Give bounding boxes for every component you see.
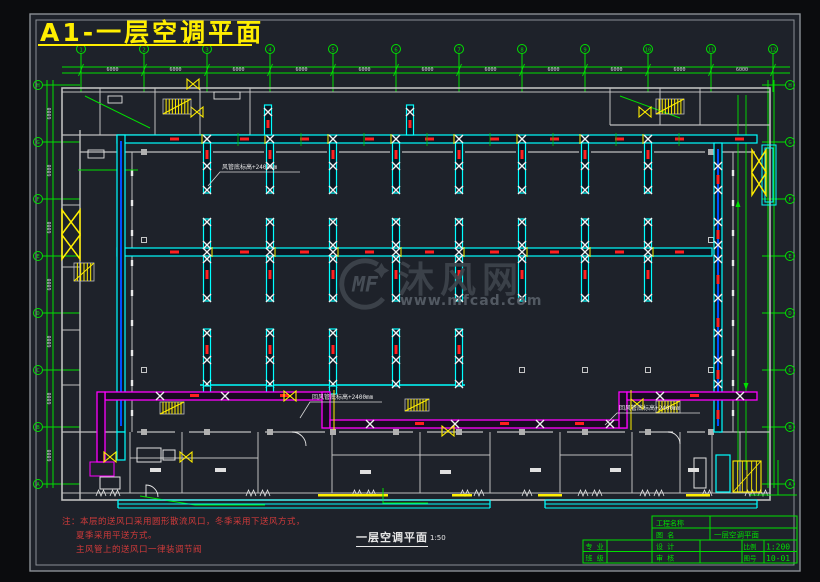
axis-number: 7 <box>457 47 460 53</box>
door-mark <box>732 290 734 296</box>
axis-letter: F <box>788 197 791 203</box>
dim-text: 6000 <box>169 67 181 73</box>
supply-duct <box>267 219 274 248</box>
column <box>330 429 336 435</box>
window-sill <box>452 494 472 497</box>
drawing-scale-label: 1:50 <box>430 534 446 542</box>
axis-number: 10 <box>645 47 652 53</box>
door-mark <box>732 350 734 356</box>
fixture <box>360 470 371 474</box>
airflow-flag <box>190 394 199 397</box>
fixture <box>530 468 541 472</box>
axis-number: 6 <box>394 47 397 53</box>
watermark: MF 沐风网 www.mfcad.com <box>336 253 526 323</box>
fixture <box>610 468 621 472</box>
airflow-flag <box>575 422 584 425</box>
airflow-flag <box>332 150 335 159</box>
airflow-flag <box>170 138 179 141</box>
airflow-flag <box>269 270 272 279</box>
fixture <box>440 470 451 474</box>
airflow-flag <box>415 422 424 425</box>
column <box>708 429 714 435</box>
fixture <box>215 468 226 472</box>
airflow-flag <box>365 138 374 141</box>
airflow-flag <box>717 370 720 379</box>
supply-duct <box>393 219 400 248</box>
airflow-flag <box>521 150 524 159</box>
door-mark <box>131 200 133 206</box>
axis-number: 9 <box>583 47 586 53</box>
door-mark <box>732 380 734 386</box>
fixture <box>150 468 161 472</box>
door-mark <box>131 410 133 416</box>
axis-letter: C <box>788 368 791 374</box>
airflow-flag <box>717 230 720 239</box>
dim-text: 6000 <box>421 67 433 73</box>
door-mark <box>732 410 734 416</box>
tb-project-label: 工程名称 <box>656 519 684 528</box>
mfcad-logo-icon: MF <box>336 255 394 313</box>
airflow-flag <box>206 150 209 159</box>
tb-check-label: 审 核 <box>656 554 674 563</box>
column <box>141 149 147 155</box>
airflow-flag <box>269 345 272 354</box>
svg-text:MF: MF <box>351 273 379 298</box>
axis-letter: E <box>36 254 39 260</box>
column <box>393 429 399 435</box>
airflow-flag <box>267 120 270 128</box>
supply-duct <box>456 219 463 248</box>
axis-number: 8 <box>520 47 523 53</box>
airflow-flag <box>425 138 434 141</box>
dim-text: 6000 <box>232 67 244 73</box>
column <box>582 429 588 435</box>
tb-drawing-label: 图 名 <box>656 531 674 540</box>
dim-text: 6000 <box>358 67 370 73</box>
axis-letter: C <box>36 368 39 374</box>
column <box>708 149 714 155</box>
supply-duct <box>204 219 211 248</box>
tb-scale-value: 1:200 <box>766 543 790 552</box>
airflow-flag <box>647 270 650 279</box>
supply-duct <box>117 432 125 460</box>
airflow-flag <box>409 120 412 128</box>
airflow-flag <box>690 394 699 397</box>
supply-duct <box>519 219 526 248</box>
dim-text: 6000 <box>547 67 559 73</box>
axis-letter: D <box>36 311 39 317</box>
dim-text: 6000 <box>47 392 53 404</box>
tb-drawing-value: 一层空调平面 <box>714 530 759 540</box>
tb-design-label: 设 计 <box>656 542 674 551</box>
duct-annotation: 回风管底标高+2400mm <box>312 393 374 401</box>
door-mark <box>131 290 133 296</box>
window-sill <box>686 494 710 497</box>
airflow-flag <box>584 150 587 159</box>
tb-number-label: 图号 <box>744 555 758 563</box>
axis-number: 12 <box>770 47 777 53</box>
tb-major-label: 专 业 <box>586 542 604 551</box>
airflow-flag <box>300 251 309 254</box>
dim-text: 6000 <box>610 67 622 73</box>
supply-duct <box>117 135 757 143</box>
dim-text: 6000 <box>673 67 685 73</box>
tb-class-label: 班 级 <box>586 554 604 563</box>
airflow-flag <box>395 150 398 159</box>
door-mark <box>732 320 734 326</box>
airflow-flag <box>490 138 499 141</box>
note-line-1: 注：本层的送风口采用圆形散流风口，冬季采用下送风方式， <box>62 515 305 527</box>
column <box>519 429 525 435</box>
note-line-2: 夏季采用平送方式。 <box>76 529 157 541</box>
airflow-flag <box>550 138 559 141</box>
axis-letter: F <box>36 197 39 203</box>
duct-annotation: 回风管底标高+2400mm <box>619 404 681 412</box>
airflow-flag <box>647 150 650 159</box>
axis-letter: E <box>788 254 791 260</box>
cad-canvas: 1234567891011126000600060006000600060006… <box>0 0 820 582</box>
dim-text: 6000 <box>47 278 53 290</box>
window-sill <box>538 494 562 497</box>
door-mark <box>131 170 133 176</box>
airflow-flag <box>717 275 720 284</box>
title-underline <box>38 44 252 46</box>
airflow-flag <box>240 138 249 141</box>
door-mark <box>131 320 133 326</box>
axis-letter: H <box>788 83 791 89</box>
door-mark <box>131 230 133 236</box>
dim-text: 6000 <box>47 449 53 461</box>
airflow-flag <box>550 251 559 254</box>
column <box>141 429 147 435</box>
supply-duct <box>582 219 589 248</box>
airflow-flag <box>332 345 335 354</box>
axis-letter: G <box>36 140 39 146</box>
airflow-flag <box>206 345 209 354</box>
dim-text: 6000 <box>295 67 307 73</box>
airflow-flag <box>240 251 249 254</box>
axis-letter: H <box>36 83 39 89</box>
tb-scale-label: 比例 <box>744 542 757 551</box>
note-line-3: 主风管上的送风口一律装调节阀 <box>76 543 202 555</box>
airflow-flag <box>675 138 684 141</box>
airflow-flag <box>675 251 684 254</box>
airflow-flag <box>735 138 744 141</box>
watermark-site-url: www.mfcad.com <box>400 293 543 309</box>
window-sill <box>318 494 388 497</box>
door-mark <box>131 260 133 266</box>
duct-annotation: 风管底标高+2400mm <box>222 163 278 171</box>
supply-duct <box>645 219 652 248</box>
airflow-flag <box>332 270 335 279</box>
dim-text: 6000 <box>47 221 53 233</box>
drawing-name-label: 一层空调平面 <box>356 529 428 547</box>
axis-letter: D <box>788 311 791 317</box>
column <box>645 429 651 435</box>
door-mark <box>732 170 734 176</box>
airflow-flag <box>717 175 720 184</box>
door-mark <box>732 260 734 266</box>
dim-text: 6000 <box>736 67 748 73</box>
airflow-flag <box>500 422 509 425</box>
airflow-flag <box>717 318 720 327</box>
airflow-flag <box>458 345 461 354</box>
airflow-flag <box>170 251 179 254</box>
supply-duct <box>330 219 337 248</box>
dim-text: 6000 <box>47 164 53 176</box>
dim-text: 6000 <box>47 335 53 347</box>
axis-number: 11 <box>708 47 715 53</box>
column <box>456 429 462 435</box>
airflow-flag <box>206 270 209 279</box>
airflow-flag <box>584 270 587 279</box>
tb-number-value: 10-01 <box>766 554 790 563</box>
axis-number: 5 <box>331 47 334 53</box>
airflow-flag <box>717 410 720 419</box>
dim-text: 6000 <box>47 107 53 119</box>
column <box>267 429 273 435</box>
airflow-flag <box>458 150 461 159</box>
dim-text: 6000 <box>106 67 118 73</box>
door-mark <box>732 200 734 206</box>
airflow-flag <box>395 345 398 354</box>
door-mark <box>131 350 133 356</box>
column <box>204 429 210 435</box>
door-mark <box>131 380 133 386</box>
airflow-flag <box>269 150 272 159</box>
axis-letter: G <box>788 140 791 146</box>
door-mark <box>732 230 734 236</box>
dim-text: 6000 <box>484 67 496 73</box>
airflow-flag <box>615 251 624 254</box>
